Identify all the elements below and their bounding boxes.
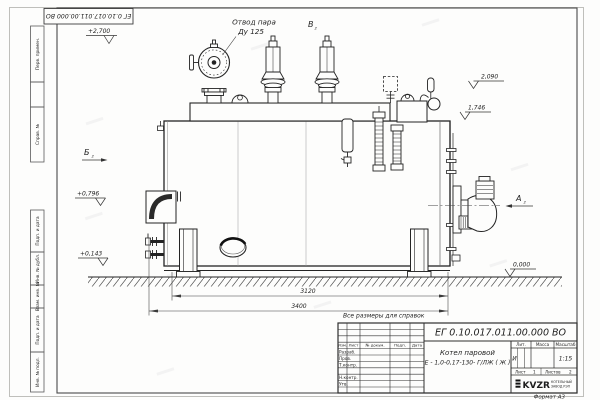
top-stamp-doc-number: ЕГ 0.10.017.011.00.000 ВО [46,12,131,19]
view-v-label: В [308,20,314,29]
kvzr-logo: KVZR КОТЕЛЬНЫЙ ЗАВОД РЭП [516,379,573,391]
gauge-capsule [428,78,435,92]
margin-label-podp1: Подп. и дата [35,216,41,246]
margin-label-invpodl: Инв. № подл. [35,357,41,387]
economizer-elbow [146,191,181,223]
burner-assembly [453,177,497,234]
level-vessel [341,119,353,167]
view-a-sub: 2 [524,200,527,205]
sig-checked: Пров. [339,356,351,361]
view-b-sub: 2 [92,154,95,159]
elev-0796-label: +0,796 [77,191,99,198]
product-title-line1: Котел паровой [440,349,495,357]
rev-header-izm: Изм. [338,343,347,348]
burner-motor [476,181,494,199]
view-label-v: В 2 [308,20,318,31]
elev-mark-2700 [86,36,117,44]
water-gauge-2 [391,125,403,170]
ground [88,277,562,287]
sheet-value: 1 [533,370,536,375]
view-arrow-b: Б 2 [82,148,108,162]
steam-outlet-valve [190,40,230,103]
elev-mark-2090 [469,81,505,89]
margin-label-vzam: Взам. инв. № [35,281,41,311]
dim-3120: 3120 [300,288,315,295]
steam-drum [190,103,390,121]
elev-1746-label: 1,746 [468,105,485,112]
left-stub-valve-1 [146,234,165,247]
margin-label-invdubl: Инв. № дубл. [35,254,41,283]
margin-cell-labels: Перв. примен. Справ. № Подп. и дата Инв.… [35,38,41,387]
rev-header-list: Лист [349,343,360,348]
header-lit: Лит. [516,342,526,347]
margin-cell-empty [31,82,45,107]
elev-mark-0796 [75,198,106,206]
dim-3400: 3400 [291,303,306,310]
view-b-label: Б [84,148,90,157]
logo-org-line2: ЗАВОД РЭП [551,385,571,389]
elev-mark-1746 [460,112,491,120]
lifting-lug-1 [232,95,248,103]
elev-mark-zero [505,269,536,277]
sig-ncontrol: Н.контр. [339,375,358,380]
sig-approved: Утв. [339,382,348,387]
top-stamp: ЕГ 0.10.017.011.00.000 ВО [44,9,133,25]
elev-2700-label: +2,700 [88,28,110,35]
titleblock-headers: Лит. Масса Масштаб [516,342,576,347]
margin-label-perv: Перв. примен. [35,38,41,70]
logo-bars-icon [516,380,521,382]
logo-text: KVZR [523,381,550,391]
view-a-label: А [515,194,521,203]
boiler-shell [164,121,450,266]
rear-header-box [397,78,440,122]
header-mass: Масса [536,342,550,347]
manometer [428,98,440,110]
margin-label-sprav: Справ. № [35,124,41,145]
sig-tcontrol: Т.контр. [338,362,357,367]
view-arrow-a: А 2 [506,194,534,208]
left-stub-valve-2 [146,250,165,259]
lifting-lug-2 [401,95,414,102]
steam-outlet-label-2: Ду 125 [237,27,264,36]
reference-note: Все размеры для справок [343,313,425,320]
rev-header-doc: № докум. [365,343,384,348]
support-leg-left [177,229,201,277]
header-scale: Масштаб [556,342,576,347]
sig-developed: Разраб. [339,350,355,355]
steam-outlet-label-1: Отвод пара [232,18,276,27]
boiler-drawing-canvas: ЕГ 0.10.017.011.00.000 ВО Перв. примен. … [0,0,600,400]
elev-mark-0143 [78,258,108,266]
elev-0143-label: +0,143 [80,251,102,258]
scale-value: 1:15 [559,356,573,363]
logo-org-line1: КОТЕЛЬНЫЙ [551,379,573,384]
sheet-row: Лист 1 Листов 2 [515,370,572,375]
product-title-line2: Е - 1,0-0,17-130- Г/ЛЖ ( Ж ) [425,360,511,367]
elev-zero-label: 0,000 [513,262,530,269]
sheets-label: Листов [545,370,561,375]
rev-header-sign: Подп. [394,343,406,348]
rev-header-date: Дата [412,343,423,348]
sheet-label: Лист [515,370,526,375]
elev-2090-label: 2,090 [481,74,498,81]
drawing-sheet: ЕГ 0.10.017.011.00.000 ВО Перв. примен. … [0,0,600,400]
support-leg-right [408,229,432,277]
view-v-sub: 2 [315,26,318,31]
water-gauge-1 [373,106,385,171]
dashed-fitting [384,77,398,104]
titleblock-doc-number: ЕГ 0.10.017.011.00.000 ВО [435,328,567,339]
sheets-value: 2 [569,370,572,375]
margin-label-podp2: Подп. и дата [35,315,41,345]
safety-valve-2 [315,36,339,103]
top-left-tap [158,121,164,131]
manhole [220,238,246,257]
burner-scroll [468,195,497,231]
lit-value: И [512,356,517,363]
siphon-tube [420,95,429,101]
format-label: Формат А3 [534,395,566,400]
